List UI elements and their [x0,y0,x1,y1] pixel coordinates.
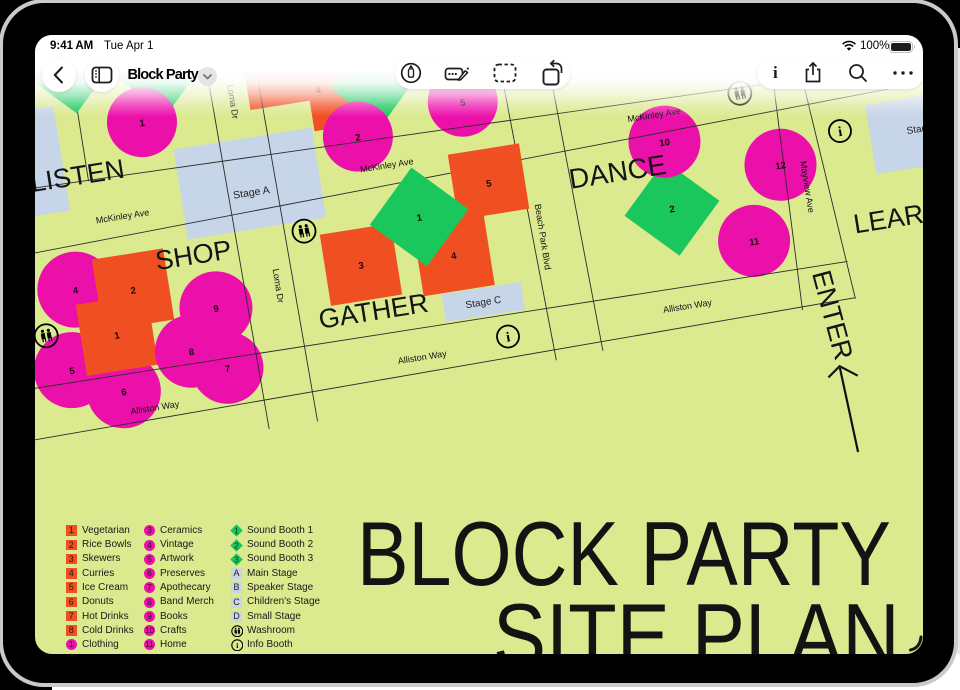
svg-text:LEARN: LEARN [851,196,923,240]
svg-text:1: 1 [234,526,239,536]
svg-text:Alliston Way: Alliston Way [662,297,713,315]
svg-text:Beach Park Blvd: Beach Park Blvd [533,203,553,270]
svg-text:i: i [505,330,511,345]
svg-text:3: 3 [234,554,239,564]
svg-text:10: 10 [659,137,671,150]
svg-text:12: 12 [775,160,787,173]
svg-text:2: 2 [234,540,239,550]
svg-text:i: i [236,641,238,650]
svg-text:Alliston Way: Alliston Way [397,348,448,366]
